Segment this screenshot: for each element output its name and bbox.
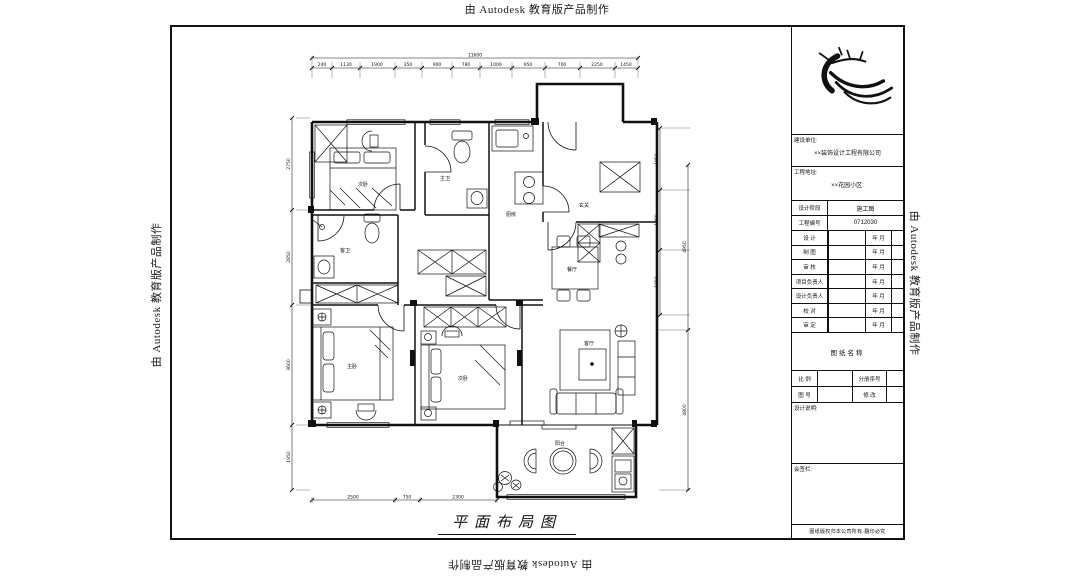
sign-label: 制 图 <box>792 246 828 260</box>
table-row: 工程编号 0712030 <box>792 216 903 231</box>
svg-text:1130: 1130 <box>340 62 352 68</box>
project-no-label: 工程编号 <box>792 216 828 230</box>
svg-text:780: 780 <box>462 62 471 68</box>
wardrobes <box>315 125 640 454</box>
revision-label: 修 改 <box>853 387 887 402</box>
sign-date: 年 月 <box>866 275 892 289</box>
fig-no-label: 图 号 <box>792 387 818 402</box>
windows <box>310 120 625 500</box>
sign-date: 年 月 <box>866 246 892 260</box>
project-no-value: 0712030 <box>828 216 903 230</box>
sign-date: 年 月 <box>866 260 892 274</box>
sign-blank <box>892 289 903 303</box>
sign-date: 年 月 <box>866 318 892 332</box>
table-row: 审 核 年 月 <box>792 260 903 275</box>
svg-text:3600: 3600 <box>286 359 292 371</box>
sign-blank <box>892 231 903 245</box>
svg-text:1450: 1450 <box>620 62 632 68</box>
address-section: 工程地址: ××花园小区: <box>792 167 903 201</box>
sign-blank <box>892 318 903 332</box>
outer-walls <box>312 84 657 497</box>
svg-text:700: 700 <box>558 62 567 68</box>
table-row: 校 对 年 月 <box>792 304 903 319</box>
scale-label: 比 例 <box>792 371 818 386</box>
svg-text:2750: 2750 <box>286 158 292 170</box>
svg-text:4800: 4800 <box>682 404 688 416</box>
scale-blank <box>887 387 903 402</box>
svg-text:2300: 2300 <box>452 495 464 501</box>
stage-value: 施工图 <box>828 201 903 215</box>
design-notes-section: 设计说明: <box>792 403 903 464</box>
copyright-text: 图纸版权归本公司所有·翻印必究 <box>809 528 885 535</box>
watermark-top: 由 Autodesk 教育版产品制作 <box>437 1 637 17</box>
room-label-bath-guest: 客卫 <box>340 247 350 254</box>
drawing-caption: 平面布局图 <box>438 511 576 535</box>
sign-label: 审 定 <box>792 318 828 332</box>
sign-date: 年 月 <box>866 289 892 303</box>
sign-label: 设计负责人 <box>792 289 828 303</box>
table-row: 图 号 修 改 <box>792 387 903 402</box>
room-label-bath-master: 主卫 <box>440 175 450 182</box>
svg-text:1850: 1850 <box>654 153 660 165</box>
sign-blank <box>828 275 866 289</box>
room-label-dining: 餐厅 <box>567 266 577 273</box>
sign-blank <box>828 246 866 260</box>
room-label-bedroom-b: 次卧 <box>458 375 468 382</box>
address-value: ××花园小区: <box>792 180 903 189</box>
volume-label: 分册序号 <box>853 371 887 386</box>
watermark-right: 由 Autodesk 教育版产品制作 <box>909 198 923 368</box>
sign-blank <box>828 318 866 332</box>
scale-blank <box>887 371 903 386</box>
countersign-section: 会签栏: <box>792 464 903 525</box>
svg-text:2250: 2250 <box>591 62 603 68</box>
scale-blank <box>818 387 853 402</box>
furniture <box>313 126 635 492</box>
table-row: 设 计 年 月 <box>792 231 903 246</box>
svg-text:750: 750 <box>403 495 412 501</box>
svg-text:350: 350 <box>404 62 413 68</box>
client-value: ××装饰设计工程有限公司 <box>792 148 903 157</box>
floor-plan: 11600 240 1130 1900 350 900 780 1000 950… <box>278 50 703 528</box>
table-row: 设计阶段 施工图 <box>792 201 903 216</box>
sign-blank <box>828 231 866 245</box>
scale-blank <box>818 371 853 386</box>
table-row: 设计负责人 年 月 <box>792 289 903 304</box>
room-label-bedroom-tl: 次卧 <box>358 181 368 188</box>
room-label-master: 主卧 <box>347 363 357 370</box>
room-label-balcony: 阳台 <box>555 440 565 447</box>
sign-label: 项目负责人 <box>792 275 828 289</box>
sign-label: 审 核 <box>792 260 828 274</box>
sign-blank <box>828 289 866 303</box>
client-label: 建设单位: <box>794 136 818 144</box>
dimension-labels: 11600 240 1130 1900 350 900 780 1000 950… <box>286 53 688 501</box>
sign-blank <box>892 304 903 318</box>
svg-text:1900: 1900 <box>371 62 383 68</box>
countersign-label: 会签栏: <box>794 465 812 473</box>
scale-table: 比 例 分册序号 图 号 修 改 <box>792 371 903 403</box>
signature-table: 设计阶段 施工图 工程编号 0712030 设 计 年 月 制 图 年 月 审 … <box>792 201 903 333</box>
sign-blank <box>828 304 866 318</box>
table-row: 项目负责人 年 月 <box>792 275 903 290</box>
cad-canvas: { "watermark": { "text": "由 Autodesk 教育版… <box>0 0 1074 576</box>
sign-blank <box>892 275 903 289</box>
title-block: 建设单位: ××装饰设计工程有限公司 工程地址: ××花园小区: 设计阶段 施工… <box>791 27 903 538</box>
svg-text:240: 240 <box>318 62 327 68</box>
design-notes-label: 设计说明: <box>794 404 818 412</box>
svg-text:1950: 1950 <box>286 451 292 463</box>
address-label: 工程地址: <box>794 168 818 176</box>
svg-text:2500: 2500 <box>347 495 359 501</box>
svg-text:4950: 4950 <box>682 241 688 253</box>
watermark-left: 由 Autodesk 教育版产品制作 <box>148 210 162 380</box>
drawing-name-header: 图纸名称 <box>831 347 865 357</box>
dim-top-overall: 11600 <box>468 53 482 59</box>
columns <box>308 118 657 427</box>
table-row: 比 例 分册序号 <box>792 371 903 387</box>
room-label-kitchen: 厨房 <box>506 211 516 218</box>
company-logo <box>796 44 900 118</box>
watermark-bottom: 由 Autodesk 教育版产品制作 <box>420 557 620 573</box>
table-row: 制 图 年 月 <box>792 246 903 261</box>
sign-blank <box>892 260 903 274</box>
svg-text:1950: 1950 <box>654 276 660 288</box>
copyright-footer: 图纸版权归本公司所有·翻印必究 <box>792 525 903 538</box>
svg-text:950: 950 <box>524 62 533 68</box>
drawing-name-section: 图纸名称 <box>792 333 903 371</box>
sign-label: 设 计 <box>792 231 828 245</box>
svg-text:900: 900 <box>433 62 442 68</box>
client-section: 建设单位: ××装饰设计工程有限公司 <box>792 135 903 167</box>
table-row: 审 定 年 月 <box>792 318 903 332</box>
logo-box <box>792 27 903 135</box>
stage-label: 设计阶段 <box>792 201 828 215</box>
sign-date: 年 月 <box>866 231 892 245</box>
sign-date: 年 月 <box>866 304 892 318</box>
svg-text:1800: 1800 <box>654 214 660 226</box>
room-label-living: 客厅 <box>584 340 594 347</box>
svg-text:1000: 1000 <box>490 62 502 68</box>
sign-label: 校 对 <box>792 304 828 318</box>
sign-blank <box>828 260 866 274</box>
svg-text:2850: 2850 <box>286 251 292 263</box>
room-label-foyer: 玄关 <box>579 202 589 209</box>
sign-blank <box>892 246 903 260</box>
